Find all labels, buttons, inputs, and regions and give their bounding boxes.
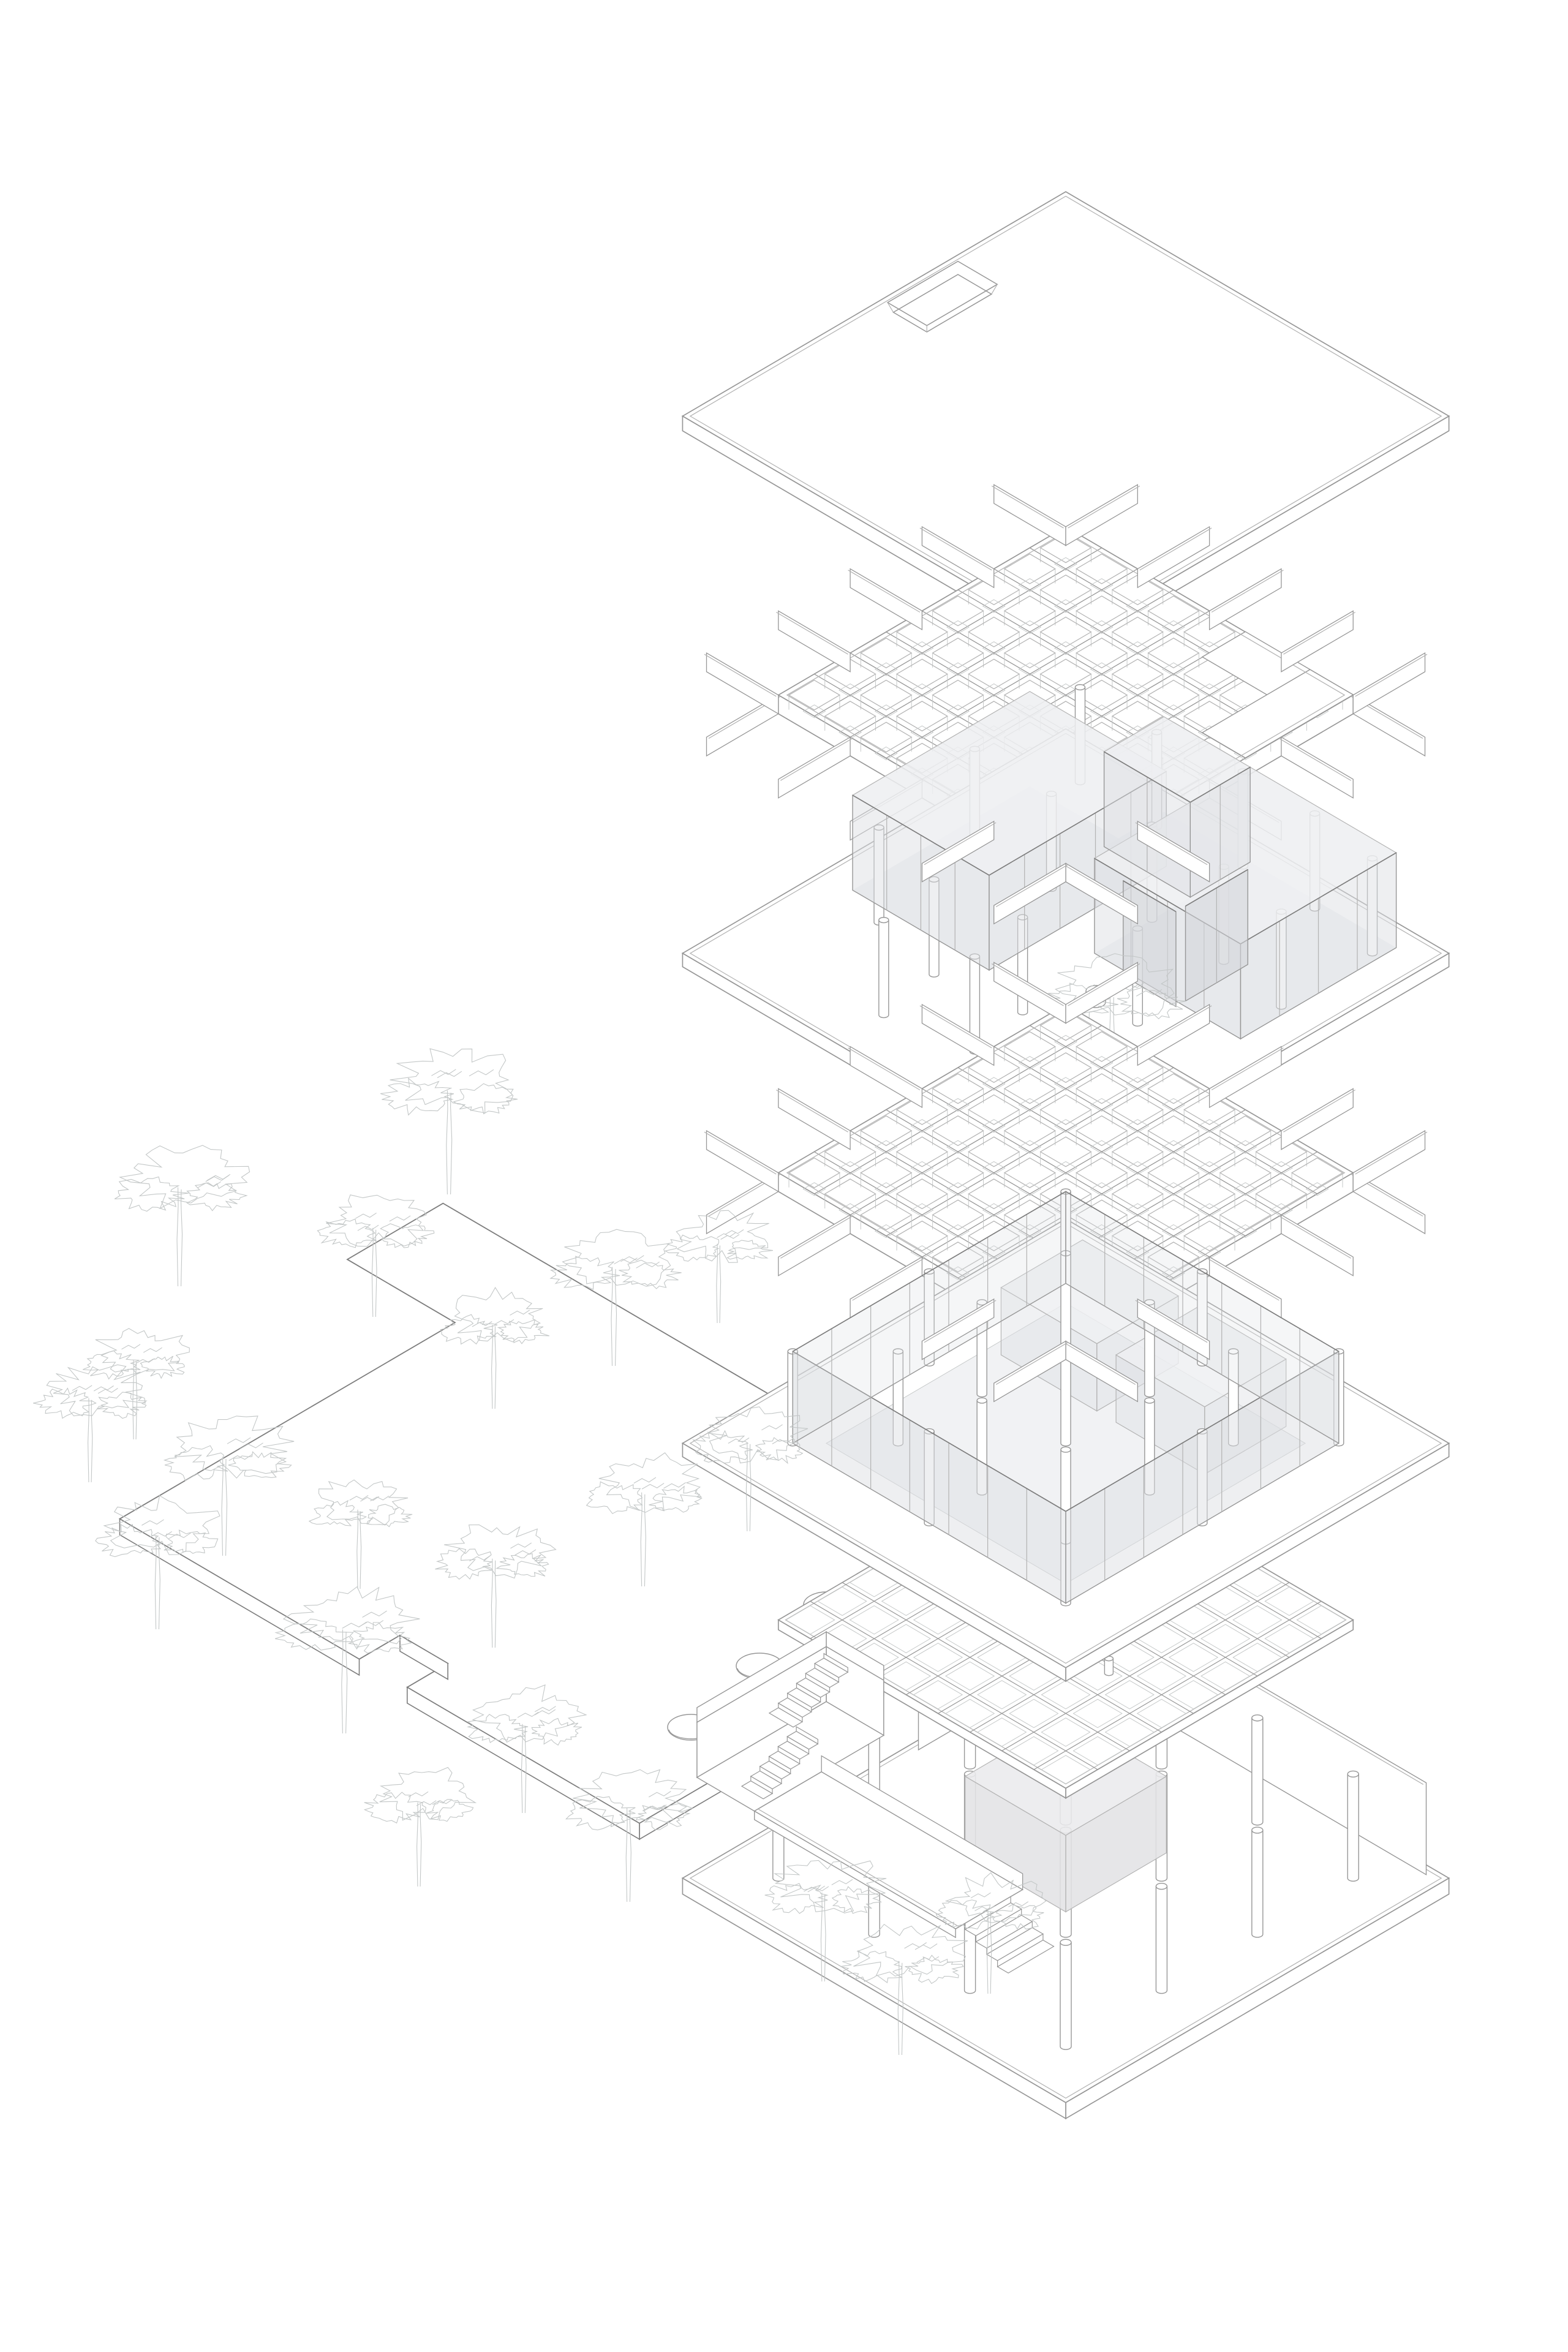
exploded-axonometric-drawing (0, 0, 1568, 2352)
drawing-canvas (0, 0, 1568, 2352)
